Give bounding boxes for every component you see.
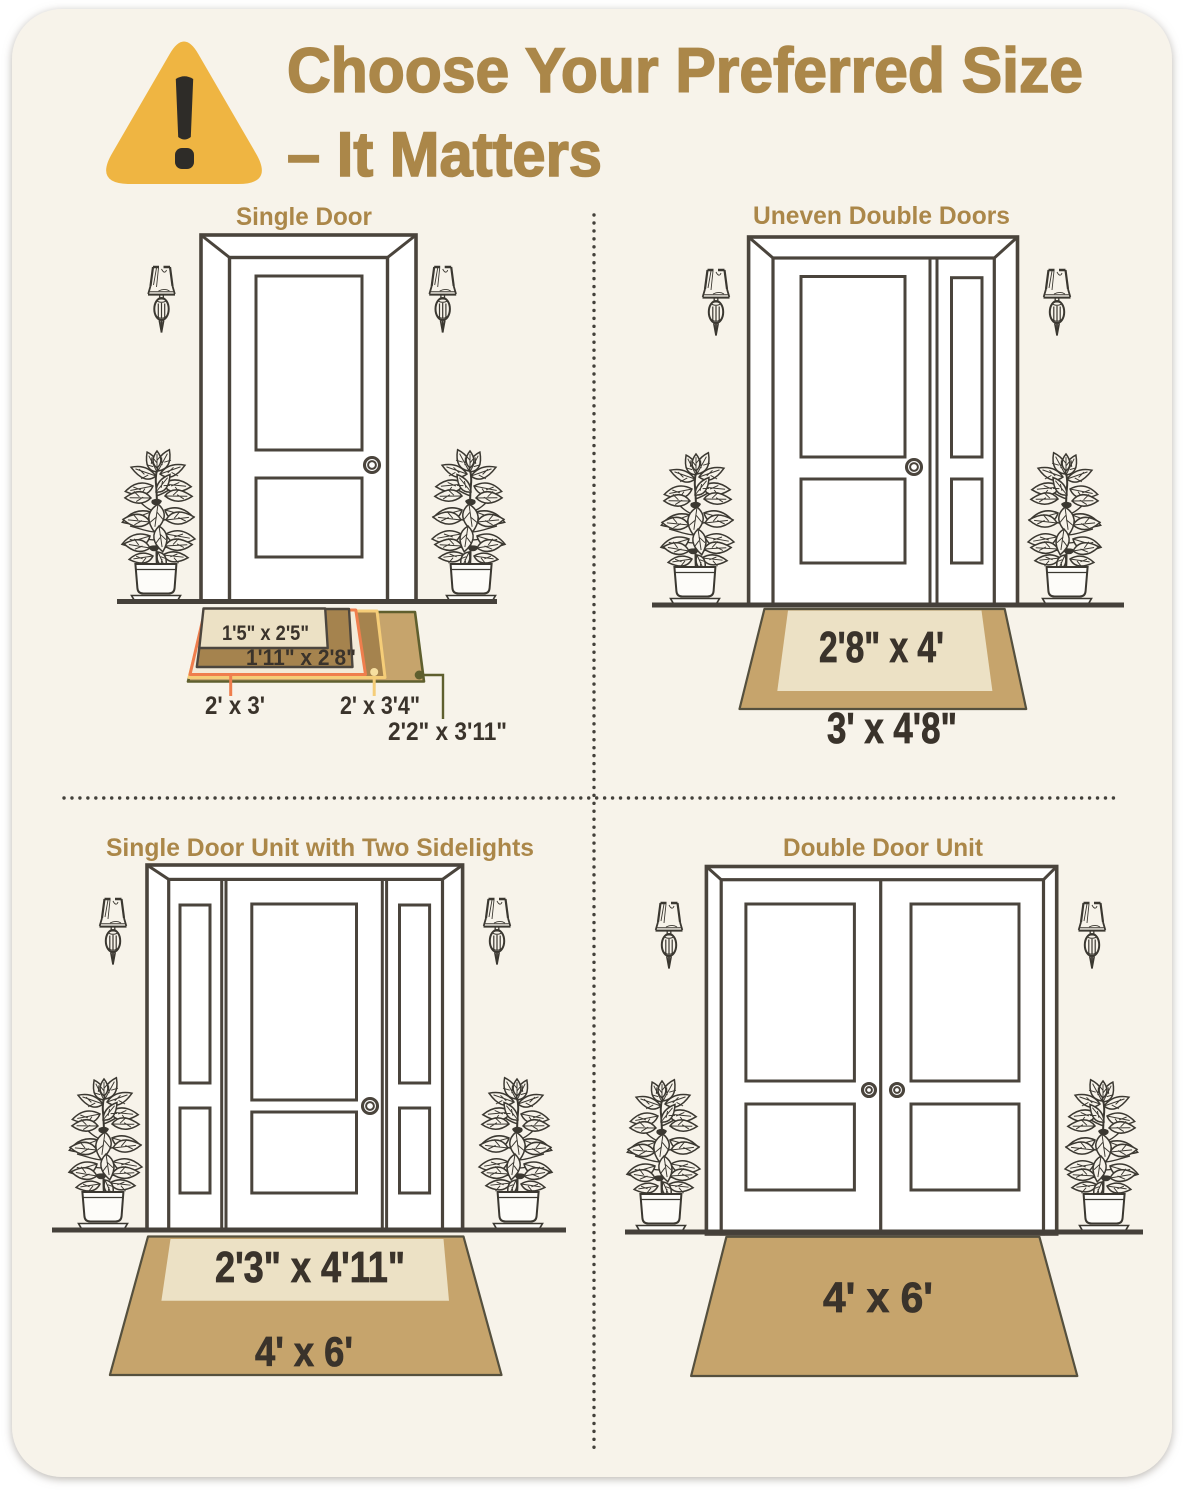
svg-text:2' x 3': 2' x 3'	[205, 692, 265, 720]
svg-text:1'5" x 2'5": 1'5" x 2'5"	[222, 622, 309, 645]
svg-text:1'11" x 2'8": 1'11" x 2'8"	[246, 645, 356, 670]
svg-text:Choose Your Preferred Size: Choose Your Preferred Size	[287, 36, 1083, 106]
svg-text:2'2" x 3'11": 2'2" x 3'11"	[388, 718, 507, 746]
svg-text:2'3" x 4'11": 2'3" x 4'11"	[215, 1243, 405, 1292]
svg-text:Uneven Double Doors: Uneven Double Doors	[753, 202, 1010, 230]
svg-text:4' x 6': 4' x 6'	[823, 1274, 933, 1322]
svg-text:2' x 3'4": 2' x 3'4"	[340, 692, 420, 720]
svg-text:Single Door Unit with Two Side: Single Door Unit with Two Sidelights	[106, 834, 534, 862]
svg-text:Double Door Unit: Double Door Unit	[783, 834, 984, 862]
svg-text:Single Door: Single Door	[236, 203, 372, 231]
svg-text:– It Matters: – It Matters	[287, 120, 602, 190]
svg-text:4' x 6': 4' x 6'	[255, 1328, 353, 1375]
svg-text:3' x 4'8": 3' x 4'8"	[827, 704, 957, 753]
svg-text:2'8" x 4': 2'8" x 4'	[819, 623, 944, 672]
